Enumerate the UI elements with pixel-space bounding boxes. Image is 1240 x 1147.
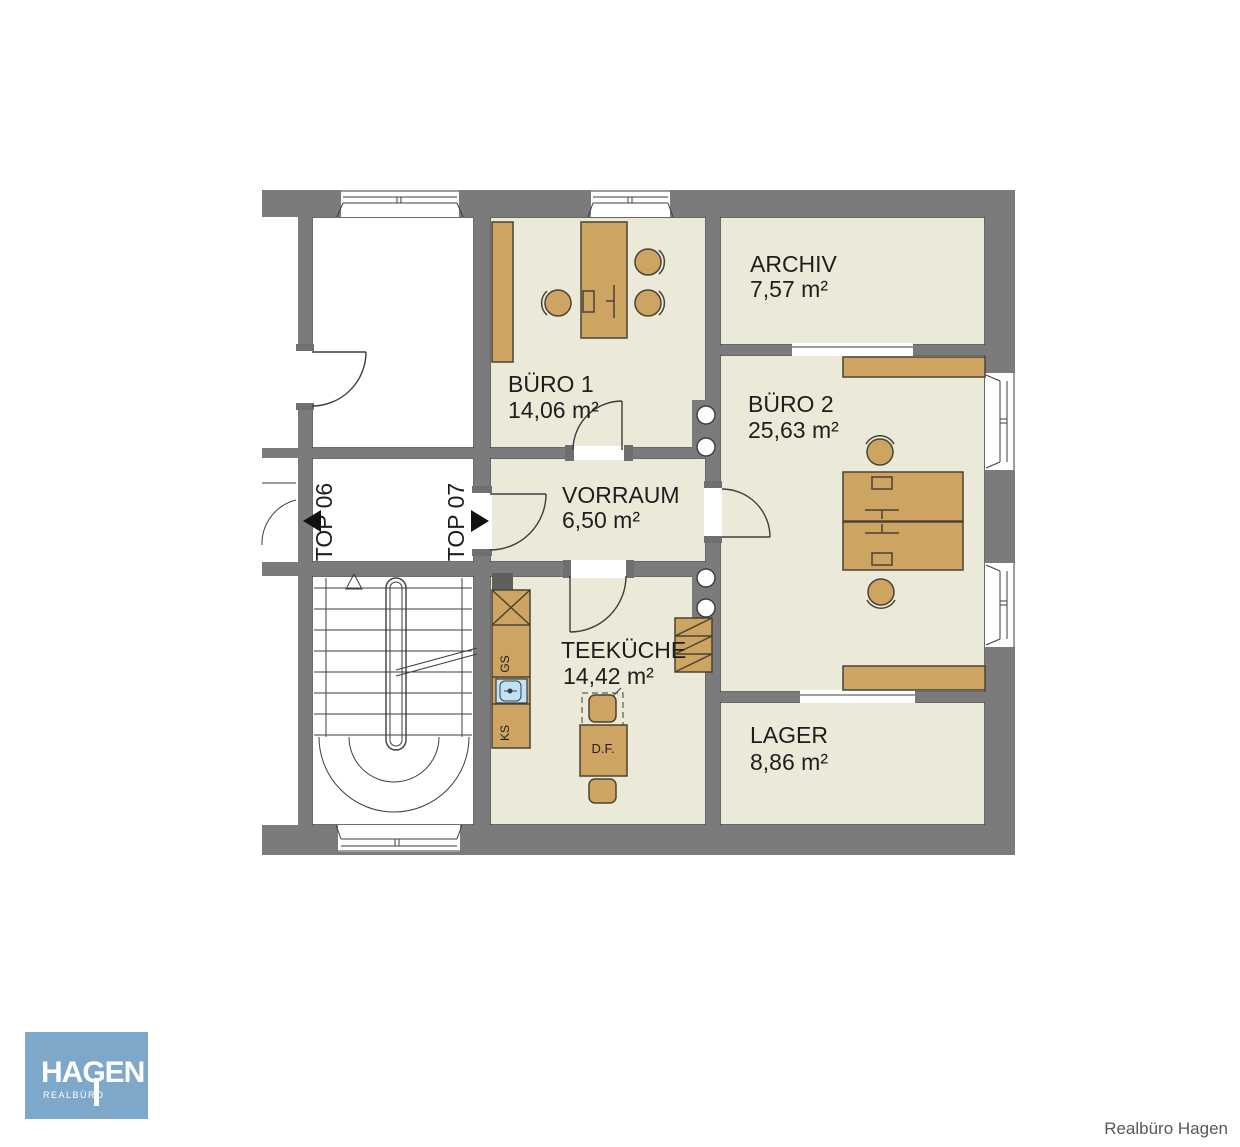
cabinet [492, 222, 513, 362]
pipe-shaft-icon [697, 599, 715, 617]
hagen-logo: HAGEN REALBÜRO [25, 1032, 148, 1119]
wall-hall-top [262, 448, 706, 458]
duct [492, 573, 513, 590]
window-symbol-top-1 [337, 190, 463, 217]
label-ks-fridge: KS [498, 725, 512, 741]
room-neighbor-top-left [312, 217, 474, 448]
area-teekueche: 14,42 m² [563, 663, 654, 689]
chair [867, 439, 893, 465]
door-neighbor-unit-partial [262, 483, 296, 545]
chair [635, 290, 661, 316]
area-buero2: 25,63 m² [748, 417, 839, 443]
sideboard [843, 357, 985, 377]
area-archiv: 7,57 m² [750, 276, 828, 302]
wall-hall-bottom [262, 562, 706, 576]
desk [843, 472, 963, 521]
chair [545, 290, 571, 316]
floor-plan: ARCHIV 7,57 m² BÜRO 1 14,06 m² BÜRO 2 25… [0, 0, 1240, 1147]
label-buero1: BÜRO 1 [508, 371, 594, 397]
sideboard [843, 666, 985, 690]
area-vorraum: 6,50 m² [562, 507, 640, 533]
desk [843, 522, 963, 570]
credit-text: Realbüro Hagen [1104, 1119, 1228, 1139]
label-df-roof-window: D.F. [591, 741, 614, 756]
wall-right [985, 190, 1015, 855]
pipe-shaft-icon [697, 438, 715, 456]
chair [635, 249, 661, 275]
label-vorraum: VORRAUM [562, 482, 680, 508]
label-buero2: BÜRO 2 [748, 391, 834, 417]
label-gs-dishwasher: GS [498, 655, 512, 672]
label-teekueche: TEEKÜCHE [561, 637, 686, 663]
sink-drain [508, 689, 513, 694]
window-symbol-right-2 [985, 563, 1015, 647]
logo-name: HAGEN [41, 1056, 144, 1090]
chair [868, 579, 894, 605]
pipe-shaft-icon [697, 569, 715, 587]
label-lager: LAGER [750, 722, 828, 748]
opening-archiv [792, 343, 913, 356]
chair [589, 695, 616, 722]
pipe-shaft-icon [697, 406, 715, 424]
window-symbol-bottom [336, 825, 462, 852]
area-buero1: 14,06 m² [508, 397, 599, 423]
chair [589, 779, 616, 803]
label-archiv: ARCHIV [750, 251, 838, 277]
desk [581, 222, 627, 338]
logo-subtitle: REALBÜRO [43, 1090, 105, 1100]
area-lager: 8,86 m² [750, 749, 828, 775]
opening-lager [800, 690, 915, 703]
window-symbol-top-2 [588, 190, 673, 217]
window-symbol-right-1 [985, 373, 1015, 470]
label-top07: TOP 07 [443, 483, 469, 561]
